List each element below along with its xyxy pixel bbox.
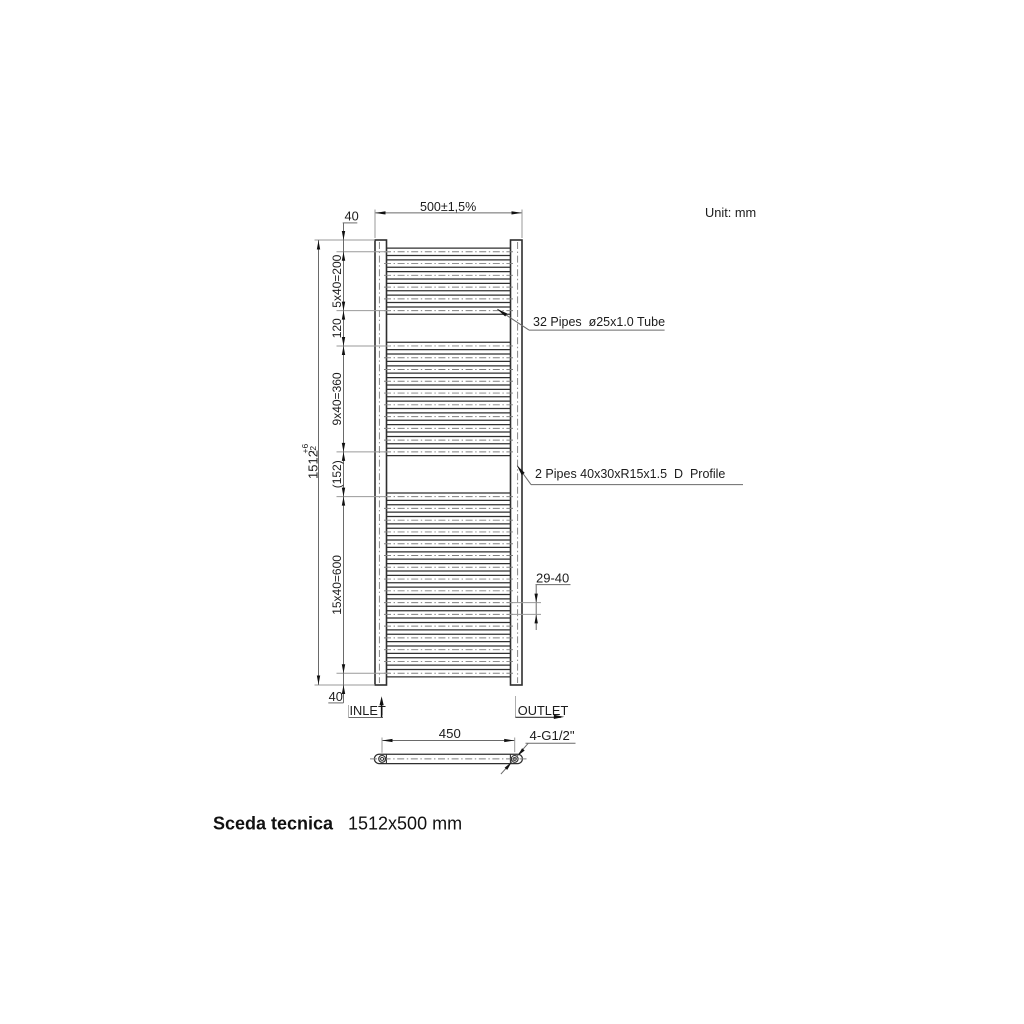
svg-text:29-40: 29-40 <box>536 571 569 586</box>
svg-text:5x40=200: 5x40=200 <box>330 254 344 307</box>
svg-text:(152): (152) <box>330 460 344 488</box>
svg-text:-2: -2 <box>308 446 318 454</box>
svg-text:9x40=360: 9x40=360 <box>330 372 344 425</box>
svg-text:450: 450 <box>439 726 461 741</box>
svg-text:4-G1/2": 4-G1/2" <box>530 728 575 743</box>
svg-text:2 Pipes 40x30xR15x1.5 D Prof: 2 Pipes 40x30xR15x1.5 D Profile <box>535 467 725 481</box>
svg-text:32 Pipes ø25x1.0 Tube: 32 Pipes ø25x1.0 Tube <box>533 315 665 329</box>
svg-text:Unit: mm: Unit: mm <box>705 205 756 220</box>
svg-text:OUTLET: OUTLET <box>518 703 569 718</box>
svg-text:15x40=600: 15x40=600 <box>330 555 344 615</box>
svg-text:40: 40 <box>345 209 359 224</box>
svg-text:1512x500 mm: 1512x500 mm <box>348 813 462 833</box>
svg-text:40: 40 <box>329 689 343 704</box>
svg-text:120: 120 <box>330 318 344 338</box>
svg-text:500±1,5%: 500±1,5% <box>420 200 476 214</box>
svg-text:Sceda tecnica: Sceda tecnica <box>213 813 334 833</box>
